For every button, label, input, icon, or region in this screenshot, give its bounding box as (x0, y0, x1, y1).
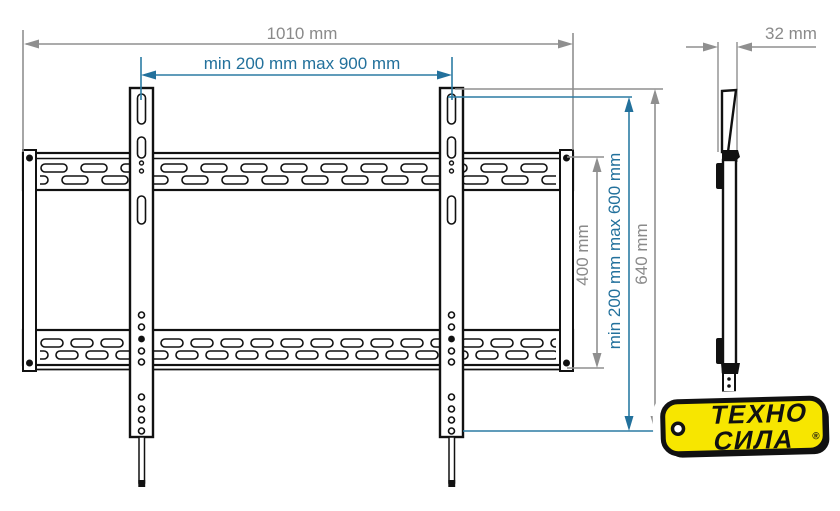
dim-width-range-label: min 200 mm max 900 mm (204, 54, 401, 73)
arrow-right-icon (437, 71, 452, 80)
dimension-width-range: min 200 mm max 900 mm (141, 54, 452, 100)
dimension-total-width: 1010 mm (23, 24, 573, 152)
diagram-canvas: 1010 mm min 200 mm max 900 mm 400 mm min… (0, 0, 840, 511)
plate-right-edge (560, 150, 573, 371)
side-lower-hook (716, 338, 724, 364)
arrow-left-icon (141, 71, 156, 80)
corner-screw (563, 155, 570, 162)
logo-registered-mark: ® (812, 431, 820, 442)
arrow-right-icon (703, 43, 718, 52)
arrow-up-icon (625, 97, 634, 112)
corner-screw (26, 155, 33, 162)
wall-mount-dimension-diagram: 1010 mm min 200 mm max 900 mm 400 mm min… (0, 0, 840, 511)
dim-height-range-label: min 200 mm max 600 mm (605, 153, 624, 350)
corner-screw (26, 360, 33, 367)
corner-screw (563, 360, 570, 367)
dim-plate-height-label: 400 mm (573, 224, 592, 285)
arrow-down-icon (625, 416, 634, 431)
arrow-left-icon (24, 40, 39, 49)
bottom-rail-slots (40, 337, 556, 363)
logo-line2: СИЛА (711, 424, 797, 456)
side-lock-plate (723, 373, 735, 392)
brand-logo: ТЕХНО СИЛА ® (652, 389, 836, 466)
arrow-right-icon (558, 40, 573, 49)
dimension-height-range: min 200 mm max 600 mm (448, 97, 656, 431)
side-plate-body (723, 160, 736, 372)
arrow-up-icon (651, 89, 660, 104)
arrow-down-icon (593, 353, 602, 368)
dim-total-height-label: 640 mm (632, 223, 651, 284)
side-view-profile: 32 mm (686, 24, 817, 392)
arrow-up-icon (593, 157, 602, 172)
top-rail-slots (40, 162, 556, 188)
dim-total-width-label: 1010 mm (267, 24, 338, 43)
logo-hole-icon (672, 423, 683, 434)
left-tv-rail (130, 88, 153, 487)
plate-left-edge (23, 150, 36, 371)
side-rail-blade (722, 90, 736, 152)
side-upper-hook (716, 163, 724, 189)
front-view-wall-plate (23, 88, 573, 487)
arrow-left-icon (737, 43, 752, 52)
right-tv-rail (440, 88, 463, 487)
dim-depth-label: 32 mm (765, 24, 817, 43)
